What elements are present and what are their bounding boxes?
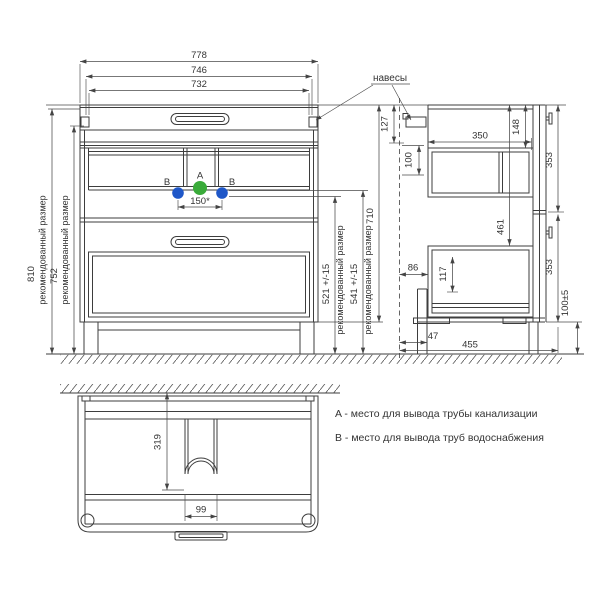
- dim-778: 778: [191, 50, 207, 61]
- legend-line-b: B - место для вывода труб водоснабжения: [335, 432, 544, 444]
- front-right-leg: [300, 322, 314, 354]
- hangers-arrow-left: [316, 85, 373, 120]
- front-right-dimensions: 521 +/-15 рекомендованный размер 541 +/-…: [318, 105, 383, 354]
- floor-hatch: [60, 355, 562, 364]
- recommended-size-label-810: рекомендованный размер: [38, 195, 48, 304]
- recommended-size-label-752: рекомендованный размер: [60, 195, 70, 304]
- technical-drawing-vanity-cabinet: A B B 150* 778 746 732 810 рекомендованн…: [0, 0, 600, 600]
- front-view: [80, 105, 318, 354]
- recommended-size-label-541: рекомендованный размер: [363, 225, 373, 334]
- side-left-foot: [414, 318, 450, 324]
- legend-line-a: A - место для вывода трубы канализации: [335, 408, 538, 420]
- marker-b-right-label: B: [229, 177, 235, 188]
- wall-hanger-right: [309, 117, 317, 127]
- side-right-foot: [503, 318, 526, 324]
- drawing-canvas: A B B 150* 778 746 732 810 рекомендованн…: [0, 0, 600, 600]
- dim-752: 752: [49, 268, 60, 284]
- bottom-drawer-handle: [171, 237, 229, 248]
- hangers-callout: навесы: [316, 73, 411, 120]
- wall-hatch: [60, 384, 340, 393]
- dim-461: 461: [496, 219, 507, 235]
- plan-right-foot: [302, 514, 315, 527]
- dim-100-5: 100±5: [560, 290, 571, 316]
- dim-455: 455: [462, 340, 478, 351]
- legend: A - место для вывода трубы канализации B…: [335, 408, 544, 444]
- sewage-outlet-marker-a: [193, 181, 207, 195]
- dim-353-bottom: 353: [544, 259, 555, 275]
- dim-746: 746: [191, 65, 207, 76]
- dim-127: 127: [380, 116, 391, 132]
- wall-hanger-left: [81, 117, 89, 127]
- dim-710: 710: [365, 208, 376, 224]
- dim-148: 148: [511, 119, 522, 135]
- marker-b-left-label: B: [164, 177, 170, 188]
- side-view: 127 100 350 148 461 353 353: [380, 98, 583, 360]
- dim-47: 47: [428, 331, 439, 342]
- dim-319: 319: [153, 434, 164, 450]
- front-left-dimensions: 810 рекомендованный размер 752 рекомендо…: [26, 109, 84, 354]
- dim-99: 99: [196, 505, 207, 516]
- marker-a-label: A: [197, 171, 204, 182]
- dim-86: 86: [408, 263, 419, 274]
- dim-150: 150*: [190, 196, 210, 207]
- dim-350: 350: [472, 131, 488, 142]
- dim-810: 810: [26, 266, 37, 282]
- water-outlet-marker-b-left: [172, 187, 184, 199]
- plan-view: 319 99: [60, 384, 340, 540]
- dim-521: 521 +/-15: [321, 264, 332, 304]
- pipe-cutout: [185, 419, 217, 474]
- pipe-outlet-markers: A B B 150*: [164, 171, 368, 211]
- top-drawer-handle: [171, 114, 229, 125]
- plan-handle: [175, 532, 227, 541]
- dim-100: 100: [404, 152, 415, 168]
- plan-left-foot: [81, 514, 94, 527]
- recommended-size-label-521: рекомендованный размер: [335, 225, 345, 334]
- water-outlet-marker-b-right: [216, 187, 228, 199]
- front-left-leg: [84, 322, 98, 354]
- dim-353-top: 353: [544, 152, 555, 168]
- hangers-label: навесы: [373, 73, 407, 84]
- dim-732: 732: [191, 79, 207, 90]
- dim-541: 541 +/-15: [349, 264, 360, 304]
- dim-117: 117: [438, 266, 449, 281]
- side-wall-hanger: [406, 117, 426, 127]
